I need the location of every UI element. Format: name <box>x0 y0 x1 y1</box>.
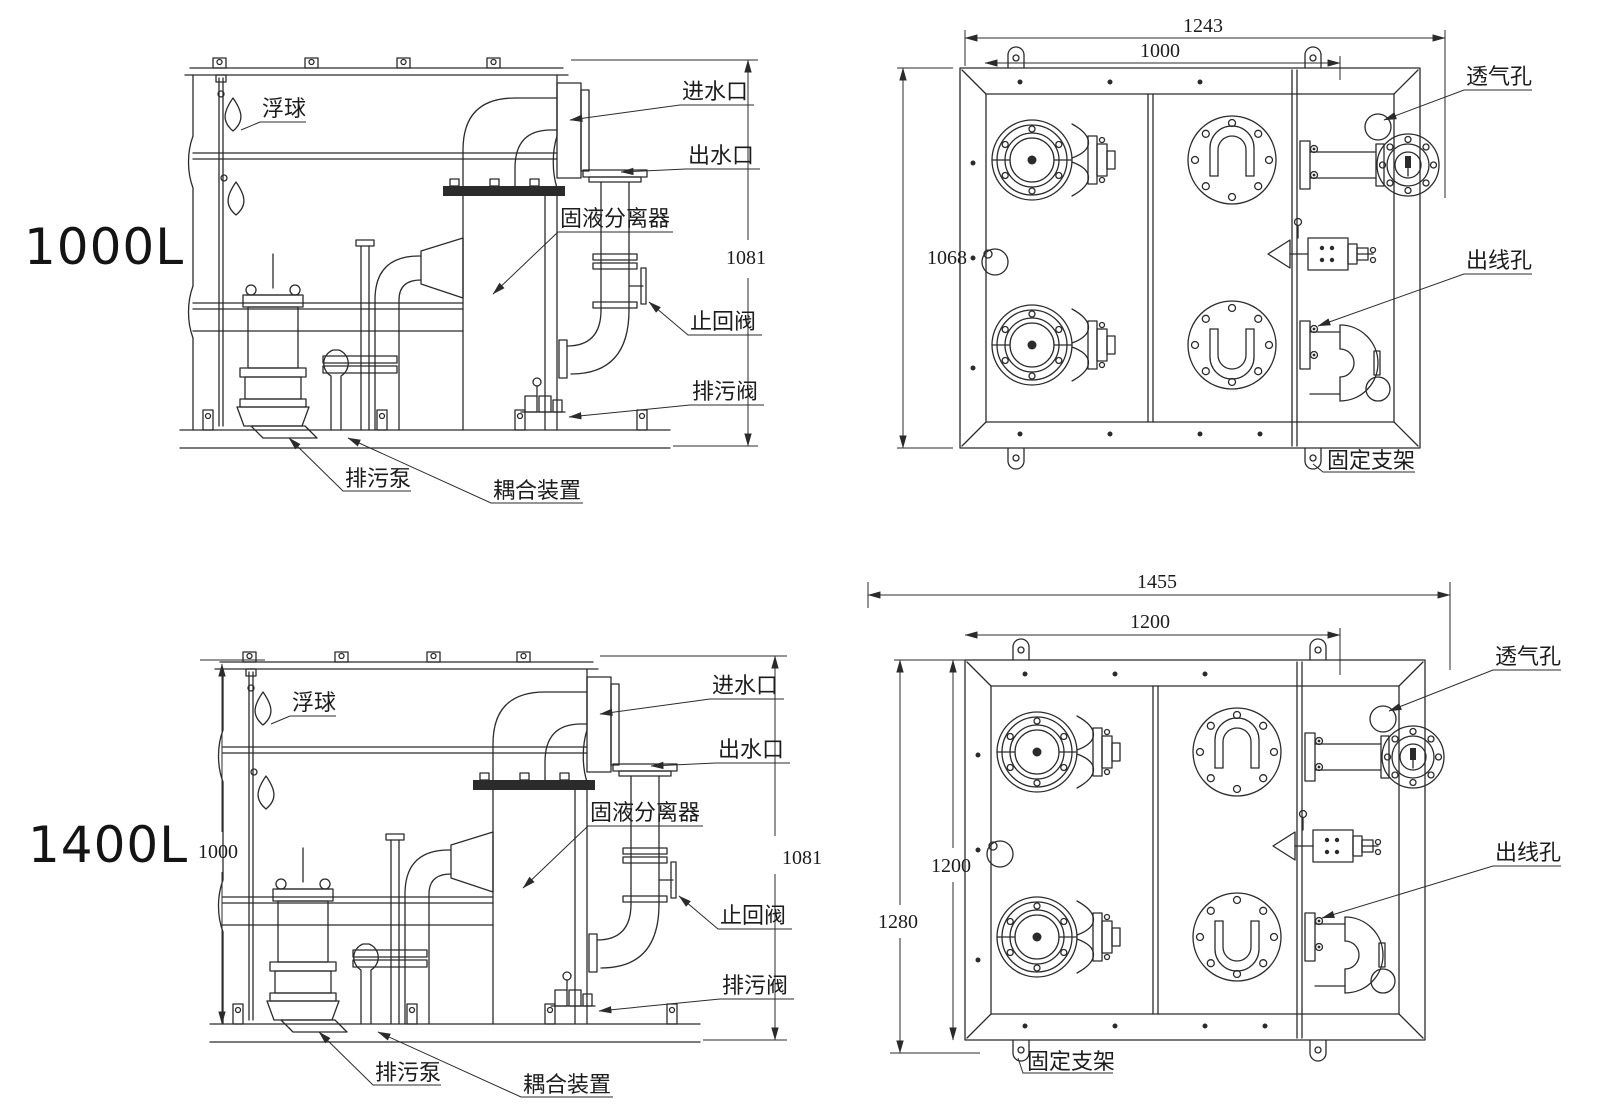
label-wire-hole: 出线孔 <box>1495 840 1561 865</box>
model-label-1400l: 1400L <box>28 816 188 874</box>
label-float-ball: 浮球 <box>262 96 306 121</box>
label-bracket: 固定支架 <box>1027 1049 1115 1074</box>
dimension-height-top-1000l: 1068 <box>897 68 967 448</box>
top-view-1400l: 1455 1200 1200 1280 透气孔 出线孔 固定支架 <box>850 560 1600 1113</box>
label-vent-hole: 透气孔 <box>1495 644 1561 669</box>
dimension-inner-width-1400l: 1200 <box>965 611 1340 675</box>
label-separator: 固液分离器 <box>590 800 700 825</box>
callouts-side-1000l: 浮球 进水口 出水口 固液分离器 止回阀 排污阀 排污泵 耦合装置 <box>241 79 764 503</box>
label-outlet: 出水口 <box>718 737 784 762</box>
dimension-inner-width-1000l: 1000 <box>985 40 1340 80</box>
label-check-valve: 止回阀 <box>690 309 756 334</box>
side-view-1000l: 1081 浮球 进水口 出水口 固液分离器 止回阀 排污阀 排污泵 耦合装置 <box>185 50 780 510</box>
dim-outer-width-value: 1243 <box>1183 15 1223 37</box>
label-bracket: 固定支架 <box>1327 448 1415 473</box>
dimension-inner-height-1400l: 1200 <box>894 660 980 1040</box>
dim-inner-width-value: 1200 <box>1130 611 1170 633</box>
dim-height-value: 1081 <box>726 247 766 269</box>
label-drain-valve: 排污阀 <box>692 379 758 404</box>
label-outlet: 出水口 <box>688 143 754 168</box>
top-view-1400l-drawing <box>965 639 1444 1061</box>
callouts-top-1400l: 透气孔 出线孔 固定支架 <box>1018 644 1561 1074</box>
dim-height-left-value: 1000 <box>198 841 238 863</box>
label-inlet: 进水口 <box>712 673 778 698</box>
callouts-top-1000l: 透气孔 出线孔 固定支架 <box>1313 64 1532 473</box>
label-coupling: 耦合装置 <box>523 1072 611 1097</box>
label-sewage-pump: 排污泵 <box>345 466 411 491</box>
dimension-outer-width-1000l: 1243 <box>965 15 1445 198</box>
top-view-1000l: 1243 1000 1068 透气孔 出线孔 固定支架 <box>895 8 1555 483</box>
top-view-1000l-drawing <box>960 47 1439 469</box>
dim-inner-width-value: 1000 <box>1140 40 1180 62</box>
dim-height-right-value: 1081 <box>782 847 822 869</box>
dim-inner-height-value: 1200 <box>931 855 971 877</box>
dim-outer-height-value: 1280 <box>878 911 918 933</box>
label-sewage-pump: 排污泵 <box>375 1060 441 1085</box>
label-inlet: 进水口 <box>682 79 748 104</box>
label-separator: 固液分离器 <box>560 206 670 231</box>
label-wire-hole: 出线孔 <box>1466 248 1532 273</box>
dim-depth-value: 1068 <box>927 247 967 269</box>
model-label-1000l: 1000L <box>24 218 184 276</box>
dim-outer-width-value: 1455 <box>1137 571 1177 593</box>
label-float-ball: 浮球 <box>292 690 336 715</box>
technical-drawing-sheet: 1000L 1081 浮球 进水口 出水口 固液分离器 止回阀 排污阀 排污泵 … <box>0 0 1600 1113</box>
label-coupling: 耦合装置 <box>493 478 581 503</box>
label-drain-valve: 排污阀 <box>722 973 788 998</box>
label-vent-hole: 透气孔 <box>1466 64 1532 89</box>
callouts-side-1400l: 浮球 进水口 出水口 固液分离器 止回阀 排污阀 排污泵 耦合装置 <box>271 673 794 1097</box>
side-view-1400l: 1000 1081 浮球 进水口 出水口 固液分离器 止回阀 排污阀 排污泵 耦… <box>170 640 830 1113</box>
label-check-valve: 止回阀 <box>720 903 786 928</box>
